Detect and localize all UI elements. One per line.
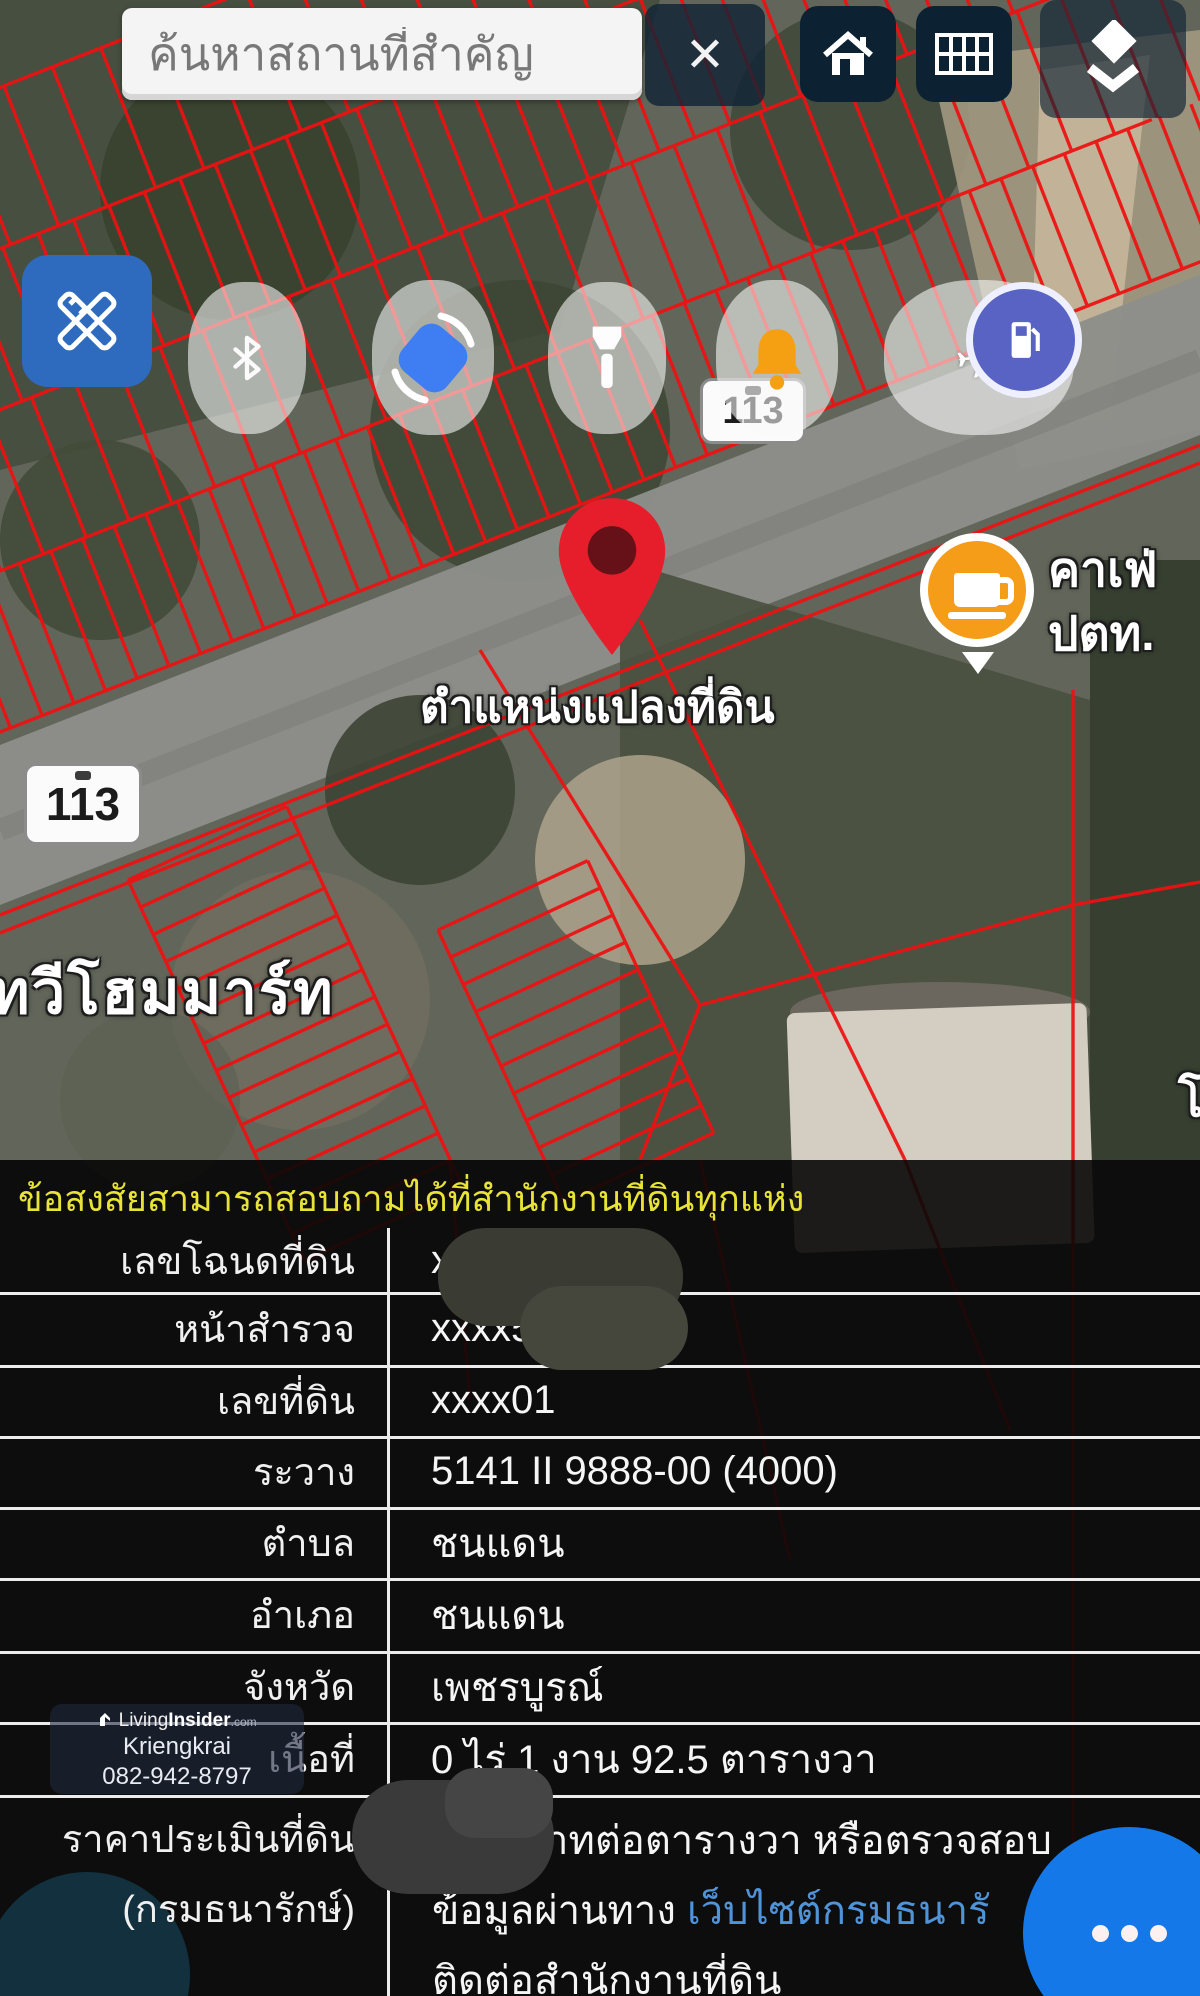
home-icon: [820, 27, 876, 81]
screen: ✕: [0, 0, 1200, 1996]
road-badge-113-lower: 113: [24, 763, 142, 845]
notice-text: ข้อสงสัยสามารถสอบถามได้ที่สำนักงานที่ดิน…: [18, 1170, 804, 1227]
table-row: ตำบล ชนแดน: [0, 1507, 1200, 1578]
table-row: ระวาง 5141 II 9888-00 (4000): [0, 1436, 1200, 1507]
dot-icon: [1092, 1925, 1109, 1942]
row-label: เลขที่ดิน: [0, 1370, 355, 1431]
treasury-website-link[interactable]: เว็บไซต์กรมธนารั: [687, 1889, 990, 1933]
row-value: เพชรบูรณ์: [431, 1655, 604, 1719]
store-label: ทวีโฮมมาร์ท: [0, 945, 335, 1040]
partial-map-label: โ: [1178, 1062, 1200, 1138]
row-label: ระวาง: [0, 1441, 355, 1502]
watermark: LivingInsider.com Kriengkrai 082-942-879…: [50, 1704, 304, 1794]
search-bar[interactable]: [122, 8, 642, 100]
row-value: ชนแดน: [431, 1583, 565, 1647]
row-label: หน้าสำรวจ: [0, 1298, 355, 1359]
row-label: เลขโฉนดที่ดิน: [0, 1230, 355, 1291]
grid-icon: [934, 32, 994, 76]
table-row: เลขที่ดิน xxxx01: [0, 1365, 1200, 1436]
bell-icon: [748, 325, 806, 391]
search-input[interactable]: [122, 27, 642, 81]
price-value-line1: าทต่อตารางวา หรือตรวจสอบ: [546, 1808, 1052, 1872]
close-icon: ✕: [685, 27, 725, 83]
bluetooth-icon: [224, 326, 270, 390]
layers-icon: [1080, 20, 1146, 98]
cafe-label-line2: ปตท.: [1048, 596, 1155, 672]
measure-icon: [48, 282, 126, 360]
price-label-line2: (กรมธนารักษ์): [0, 1878, 355, 1939]
map-pin-icon: [556, 498, 668, 655]
pin-label: ตำแหน่งแปลงที่ดิน: [420, 672, 775, 742]
parcel-info-panel: ข้อสงสัยสามารถสอบถามได้ที่สำนักงานที่ดิน…: [0, 1160, 1200, 1996]
living-insider-logo-icon: [97, 1712, 113, 1728]
close-search-button[interactable]: ✕: [645, 4, 765, 106]
row-value: xxxx01: [431, 1378, 556, 1423]
cafe-marker[interactable]: [920, 533, 1034, 647]
dot-icon: [1150, 1925, 1167, 1942]
flashlight-tile[interactable]: [548, 282, 666, 434]
fuel-pump-icon: [1007, 318, 1041, 362]
price-label-line1: ราคาประเมินที่ดิน: [0, 1808, 355, 1869]
flashlight-icon: [587, 323, 627, 393]
notification-tile[interactable]: [716, 280, 838, 435]
bluetooth-tile[interactable]: [188, 282, 306, 434]
watermark-brand: LivingInsider.com: [50, 1710, 304, 1732]
price-value-line2-text: ข้อมูลผ่านทาง: [432, 1889, 687, 1933]
dot-icon: [1121, 1925, 1138, 1942]
row-value: ชนแดน: [431, 1511, 565, 1575]
price-value-line3: ติดต่อสำนักงานที่ดิน: [432, 1948, 781, 1996]
home-button[interactable]: [800, 6, 896, 102]
parcel-pin[interactable]: [556, 498, 668, 660]
watermark-name: Kriengkrai: [50, 1732, 304, 1762]
layers-button[interactable]: [1040, 0, 1186, 118]
row-label: อำเภอ: [0, 1584, 355, 1645]
shield-crest-icon: [75, 771, 91, 780]
watermark-phone: 082-942-8797: [50, 1762, 304, 1792]
redaction-blob: [445, 1768, 553, 1838]
row-value: 5141 II 9888-00 (4000): [431, 1449, 838, 1494]
redaction-blob: [520, 1286, 688, 1370]
coffee-cup-icon: [954, 573, 1000, 607]
rotation-tile[interactable]: [372, 280, 494, 435]
grid-button[interactable]: [916, 6, 1012, 102]
cafe-marker-tail: [962, 652, 994, 674]
rotation-arcs-icon: [381, 306, 485, 410]
fuel-station-marker[interactable]: [966, 282, 1082, 398]
measure-tool-button[interactable]: [22, 255, 152, 387]
table-row: อำเภอ ชนแดน: [0, 1578, 1200, 1651]
row-label: ตำบล: [0, 1512, 355, 1573]
